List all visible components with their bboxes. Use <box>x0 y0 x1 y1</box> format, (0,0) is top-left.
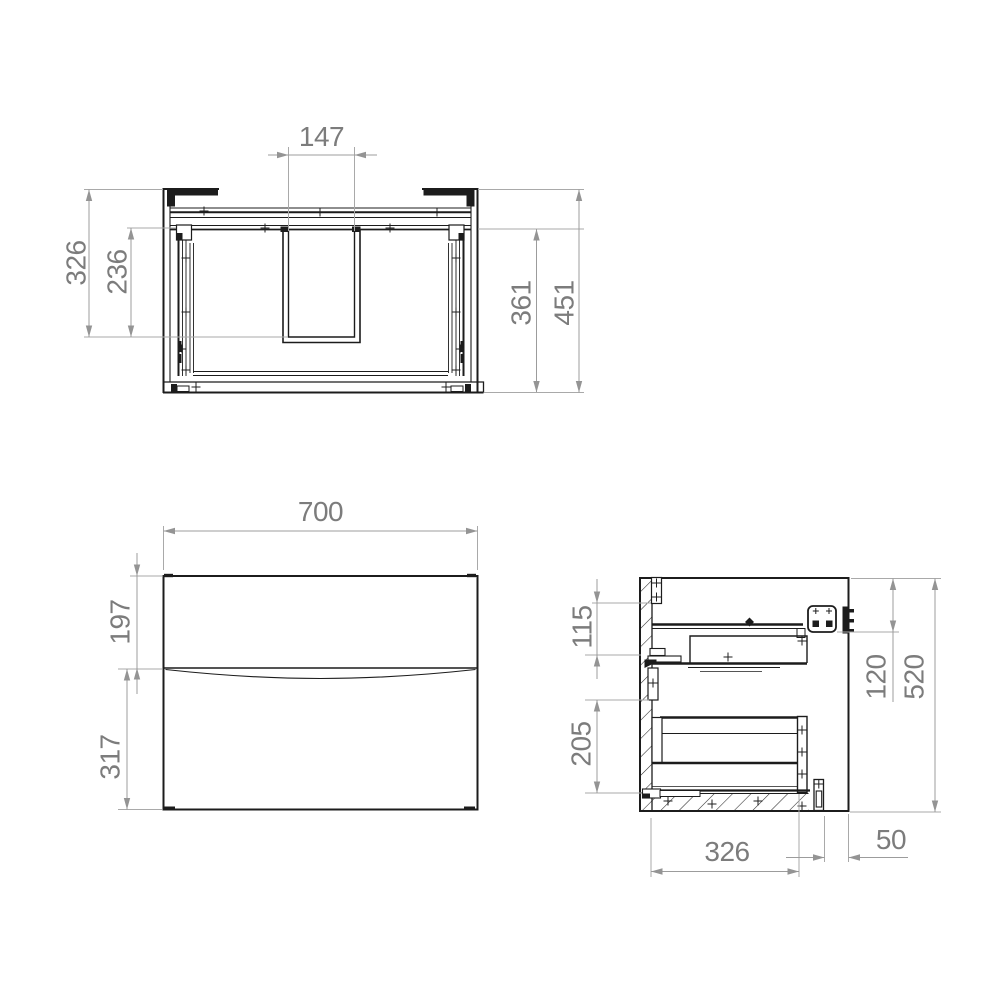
dim-top-drawer-height: 197 <box>104 553 162 694</box>
dim-label-rear-clearance: 50 <box>876 824 906 855</box>
dim-label-overall-depth: 451 <box>548 280 579 325</box>
extension-lines <box>164 526 478 570</box>
side-view: 115 205 120 520 <box>565 578 941 878</box>
dim-cutout-width: 147 <box>268 121 377 231</box>
front-view: 700 197 317 <box>94 496 477 810</box>
dim-overall-width: 700 <box>164 496 478 570</box>
bottom-front-rail <box>660 791 700 797</box>
right-corner-block-detail <box>459 233 465 240</box>
hanging-rail-top <box>163 382 484 393</box>
dimension-arrows <box>813 854 860 860</box>
slide-detail <box>178 341 182 352</box>
dim-top-drawer-side: 115 <box>566 579 651 679</box>
left-flange <box>167 188 218 207</box>
rail-end-detail-right <box>465 384 471 392</box>
extension-lines <box>837 579 941 633</box>
top-view-dimensions: 147 326 236 361 <box>60 121 584 392</box>
dim-label-bottom-drawer-height: 317 <box>94 734 125 779</box>
dim-label-drawer-depth: 326 <box>704 836 749 867</box>
dim-bottom-drawer-side: 205 <box>565 700 649 793</box>
cutout-corner-nib-right <box>352 227 361 233</box>
wall-bracket <box>808 606 836 632</box>
slide-block-1 <box>650 649 665 656</box>
dim-rear-clearance: 50 <box>786 814 908 862</box>
corner-nib <box>164 574 173 577</box>
technical-drawing-page: 147 326 236 361 <box>0 0 1005 1005</box>
dim-label-top-drawer-side: 115 <box>566 605 597 648</box>
wall-inner-lines <box>170 191 471 382</box>
rail-end-detail-left <box>171 384 177 392</box>
wall-anchor-tooth <box>850 619 855 623</box>
dim-label-overall-width: 700 <box>298 496 343 527</box>
back-panel-lines <box>193 372 448 376</box>
slide-detail <box>461 354 465 363</box>
side-wall-lines <box>164 188 478 393</box>
dim-bottom-drawer-height: 317 <box>94 669 162 810</box>
front-view-dimensions: 700 197 317 <box>94 496 477 809</box>
dim-label-outer-depth: 326 <box>60 240 91 285</box>
wall-anchor-tooth <box>850 609 855 613</box>
dim-label-inner-depth-right: 361 <box>505 280 536 325</box>
slide-detail <box>178 354 182 363</box>
front-view-drawing <box>164 574 478 811</box>
right-flange <box>424 188 475 207</box>
cabinet-front-outline <box>164 576 478 810</box>
cutout-outer <box>283 230 360 343</box>
rail-bracket-right <box>451 386 463 392</box>
corner-nib <box>164 807 175 811</box>
fastener-cross-marks <box>178 207 465 392</box>
cutout-corner-nib-left <box>281 227 290 233</box>
technical-drawing-canvas: 147 326 236 361 <box>0 0 1005 1005</box>
dim-label-inner-depth: 236 <box>101 249 132 294</box>
bottom-drawer-front-panel <box>652 718 662 764</box>
slide-detail <box>461 341 465 352</box>
rail-bracket-left <box>177 386 189 392</box>
left-corner-block-detail <box>177 233 183 240</box>
extension-lines <box>825 814 849 862</box>
dim-label-bracket-offset: 120 <box>860 654 891 699</box>
top-drawer-box <box>690 636 807 663</box>
corner-nib <box>467 574 476 577</box>
bracket-screw-left <box>813 621 820 628</box>
top-view: 147 326 236 361 <box>60 121 584 393</box>
dim-label-cutout-width: 147 <box>299 121 344 152</box>
dim-label-overall-height: 520 <box>898 654 929 699</box>
top-view-drawing <box>163 188 484 393</box>
dim-label-bottom-drawer-side: 205 <box>565 721 596 766</box>
side-view-drawing <box>640 578 854 812</box>
bracket-screw-right <box>826 621 833 628</box>
dim-inner-depth: 236 <box>101 228 176 337</box>
bottom-front-nib <box>643 794 650 799</box>
wall-anchor <box>843 607 850 634</box>
dim-label-top-drawer-height: 197 <box>104 599 135 644</box>
cutout-inner <box>289 230 355 337</box>
extension-lines <box>289 147 355 231</box>
slide-rail-thin-lines <box>183 240 460 376</box>
slide-rail-thick-lines <box>179 240 464 376</box>
handle-recess-curve <box>166 670 476 679</box>
corner-nib <box>464 807 475 811</box>
side-view-dimensions: 115 205 120 520 <box>565 579 941 878</box>
